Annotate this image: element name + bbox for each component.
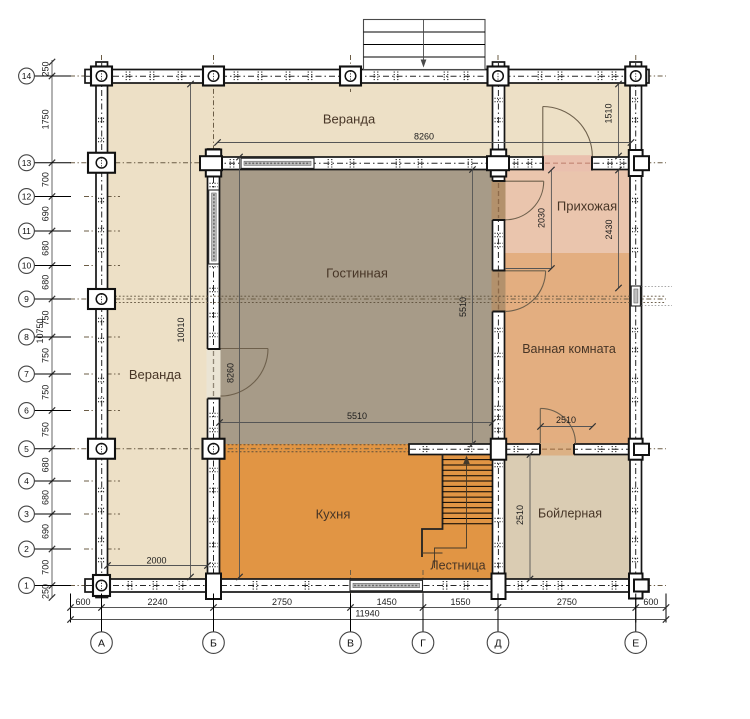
svg-text:6: 6 bbox=[24, 406, 29, 416]
svg-text:5510: 5510 bbox=[347, 411, 367, 421]
svg-text:Кухня: Кухня bbox=[316, 507, 351, 522]
svg-text:10750: 10750 bbox=[35, 318, 45, 343]
svg-text:1450: 1450 bbox=[377, 597, 397, 607]
svg-text:250: 250 bbox=[41, 61, 51, 76]
svg-text:12: 12 bbox=[22, 192, 32, 202]
svg-text:1510: 1510 bbox=[604, 103, 614, 123]
svg-text:Ванная комната: Ванная комната bbox=[522, 342, 616, 356]
svg-text:600: 600 bbox=[643, 597, 658, 607]
svg-text:9: 9 bbox=[24, 294, 29, 304]
svg-text:2240: 2240 bbox=[147, 597, 167, 607]
svg-text:750: 750 bbox=[41, 385, 51, 400]
svg-text:2000: 2000 bbox=[146, 556, 166, 566]
svg-text:2430: 2430 bbox=[604, 219, 614, 239]
svg-text:680: 680 bbox=[41, 457, 51, 472]
svg-text:680: 680 bbox=[41, 241, 51, 256]
svg-text:2030: 2030 bbox=[537, 208, 547, 228]
svg-text:680: 680 bbox=[41, 275, 51, 290]
svg-text:Веранда: Веранда bbox=[129, 367, 182, 382]
svg-text:14: 14 bbox=[22, 71, 32, 81]
svg-text:5: 5 bbox=[24, 444, 29, 454]
svg-text:4: 4 bbox=[24, 476, 29, 486]
svg-text:2750: 2750 bbox=[272, 597, 292, 607]
svg-text:2510: 2510 bbox=[515, 505, 525, 525]
svg-text:7: 7 bbox=[24, 369, 29, 379]
svg-text:В: В bbox=[347, 637, 354, 649]
svg-text:8260: 8260 bbox=[414, 132, 434, 142]
svg-text:10: 10 bbox=[22, 261, 32, 271]
svg-text:2510: 2510 bbox=[556, 415, 576, 425]
svg-text:Бойлерная: Бойлерная bbox=[538, 507, 602, 521]
svg-text:5510: 5510 bbox=[458, 297, 468, 317]
svg-text:Гостинная: Гостинная bbox=[326, 266, 388, 281]
svg-text:690: 690 bbox=[41, 206, 51, 221]
svg-text:8: 8 bbox=[24, 332, 29, 342]
svg-text:250: 250 bbox=[41, 584, 51, 599]
svg-text:680: 680 bbox=[41, 490, 51, 505]
svg-text:750: 750 bbox=[41, 348, 51, 363]
svg-text:1: 1 bbox=[24, 581, 29, 591]
svg-text:2: 2 bbox=[24, 544, 29, 554]
svg-text:11: 11 bbox=[22, 226, 31, 236]
svg-text:8260: 8260 bbox=[226, 363, 236, 383]
svg-text:Г: Г bbox=[420, 637, 426, 649]
svg-text:Лестница: Лестница bbox=[430, 559, 485, 573]
svg-text:700: 700 bbox=[41, 172, 51, 187]
svg-text:10010: 10010 bbox=[176, 317, 186, 342]
svg-text:Прихожая: Прихожая bbox=[557, 199, 617, 214]
svg-text:А: А bbox=[98, 637, 105, 649]
svg-text:2750: 2750 bbox=[557, 597, 577, 607]
svg-text:Е: Е bbox=[632, 637, 639, 649]
svg-text:13: 13 bbox=[22, 158, 32, 168]
svg-text:1550: 1550 bbox=[450, 597, 470, 607]
svg-text:750: 750 bbox=[41, 422, 51, 437]
svg-text:1750: 1750 bbox=[41, 109, 51, 129]
svg-text:600: 600 bbox=[75, 597, 90, 607]
svg-text:Веранда: Веранда bbox=[323, 112, 376, 127]
svg-text:Б: Б bbox=[210, 637, 217, 649]
svg-text:11940: 11940 bbox=[355, 609, 379, 619]
svg-text:690: 690 bbox=[41, 524, 51, 539]
svg-text:700: 700 bbox=[41, 560, 51, 575]
svg-text:Д: Д bbox=[494, 637, 501, 649]
svg-text:3: 3 bbox=[24, 509, 29, 519]
